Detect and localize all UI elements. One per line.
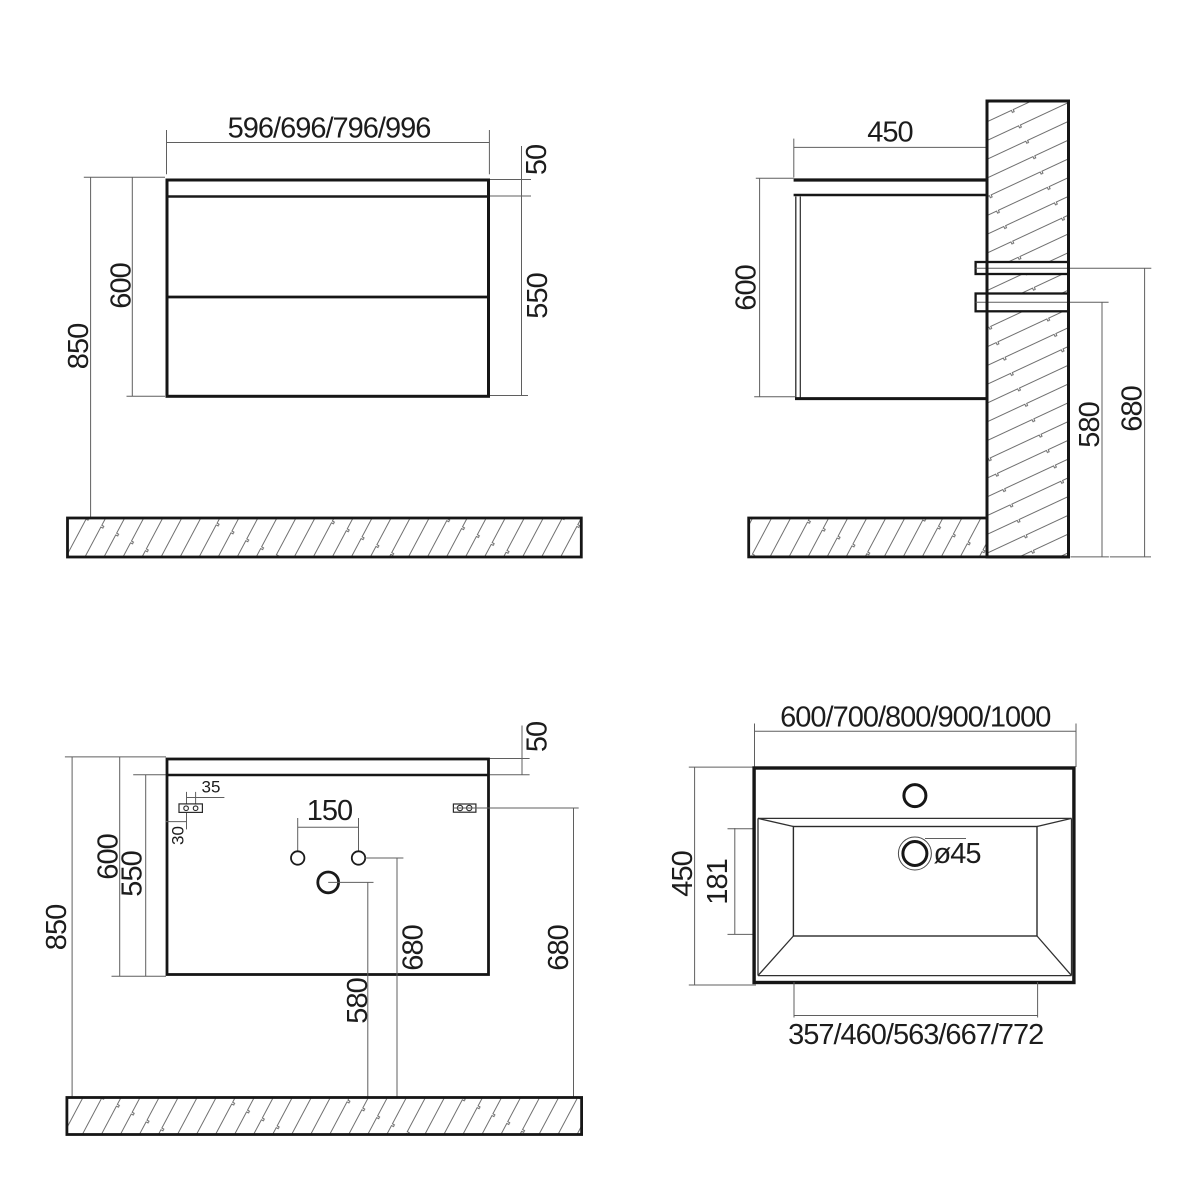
svg-text:35: 35 xyxy=(202,778,221,797)
svg-text:680: 680 xyxy=(398,925,430,970)
svg-text:596/696/796/996: 596/696/796/996 xyxy=(228,113,431,145)
svg-text:30: 30 xyxy=(169,826,188,845)
svg-text:600: 600 xyxy=(106,263,138,308)
svg-text:550: 550 xyxy=(522,273,554,318)
svg-text:680: 680 xyxy=(1117,386,1149,431)
svg-text:450: 450 xyxy=(867,117,912,149)
svg-text:580: 580 xyxy=(342,978,374,1023)
svg-text:150: 150 xyxy=(307,795,352,827)
svg-text:550: 550 xyxy=(117,851,149,896)
svg-text:850: 850 xyxy=(63,324,95,369)
svg-text:580: 580 xyxy=(1074,402,1106,447)
svg-text:600/700/800/900/1000: 600/700/800/900/1000 xyxy=(780,702,1050,734)
svg-text:450: 450 xyxy=(667,851,699,896)
svg-text:600: 600 xyxy=(731,265,763,310)
svg-text:50: 50 xyxy=(522,722,554,752)
svg-text:50: 50 xyxy=(521,145,553,175)
svg-text:357/460/563/667/772: 357/460/563/667/772 xyxy=(788,1019,1043,1051)
svg-text:181: 181 xyxy=(702,859,734,904)
svg-text:680: 680 xyxy=(543,925,575,970)
svg-text:ø45: ø45 xyxy=(934,838,981,870)
svg-text:850: 850 xyxy=(41,905,73,950)
